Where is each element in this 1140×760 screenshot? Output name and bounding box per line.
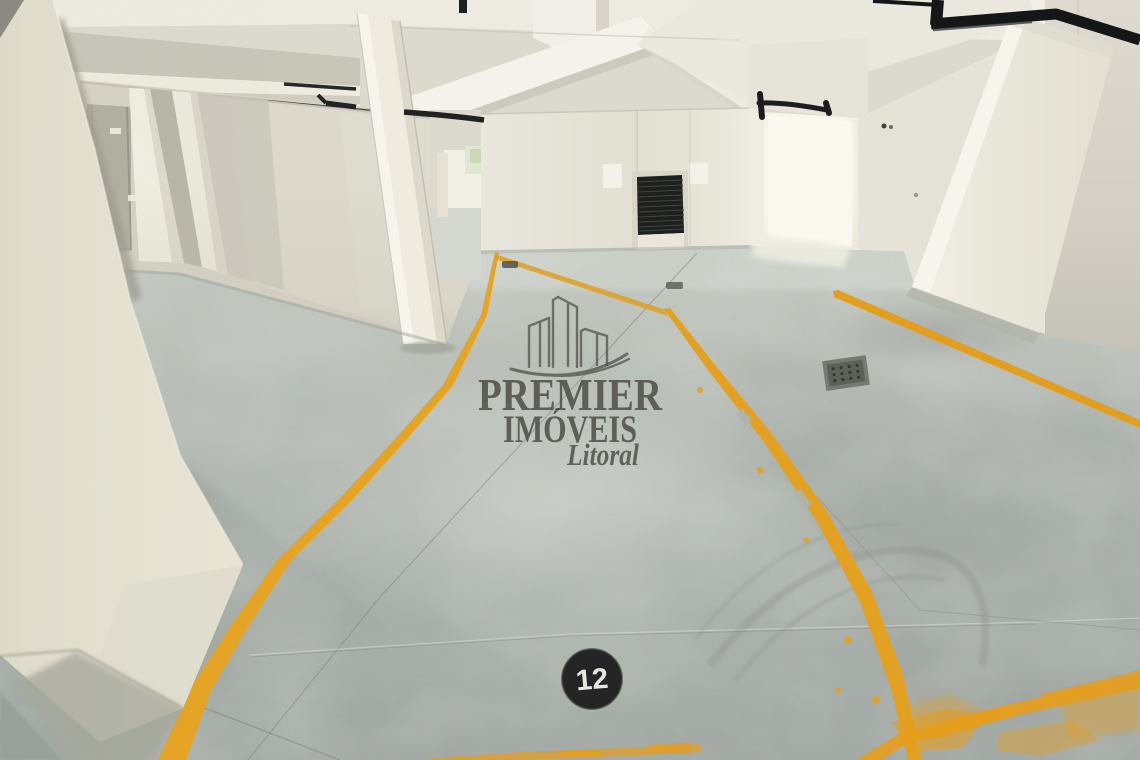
svg-text:12: 12 bbox=[575, 663, 610, 698]
svg-text:Litoral: Litoral bbox=[566, 437, 639, 472]
